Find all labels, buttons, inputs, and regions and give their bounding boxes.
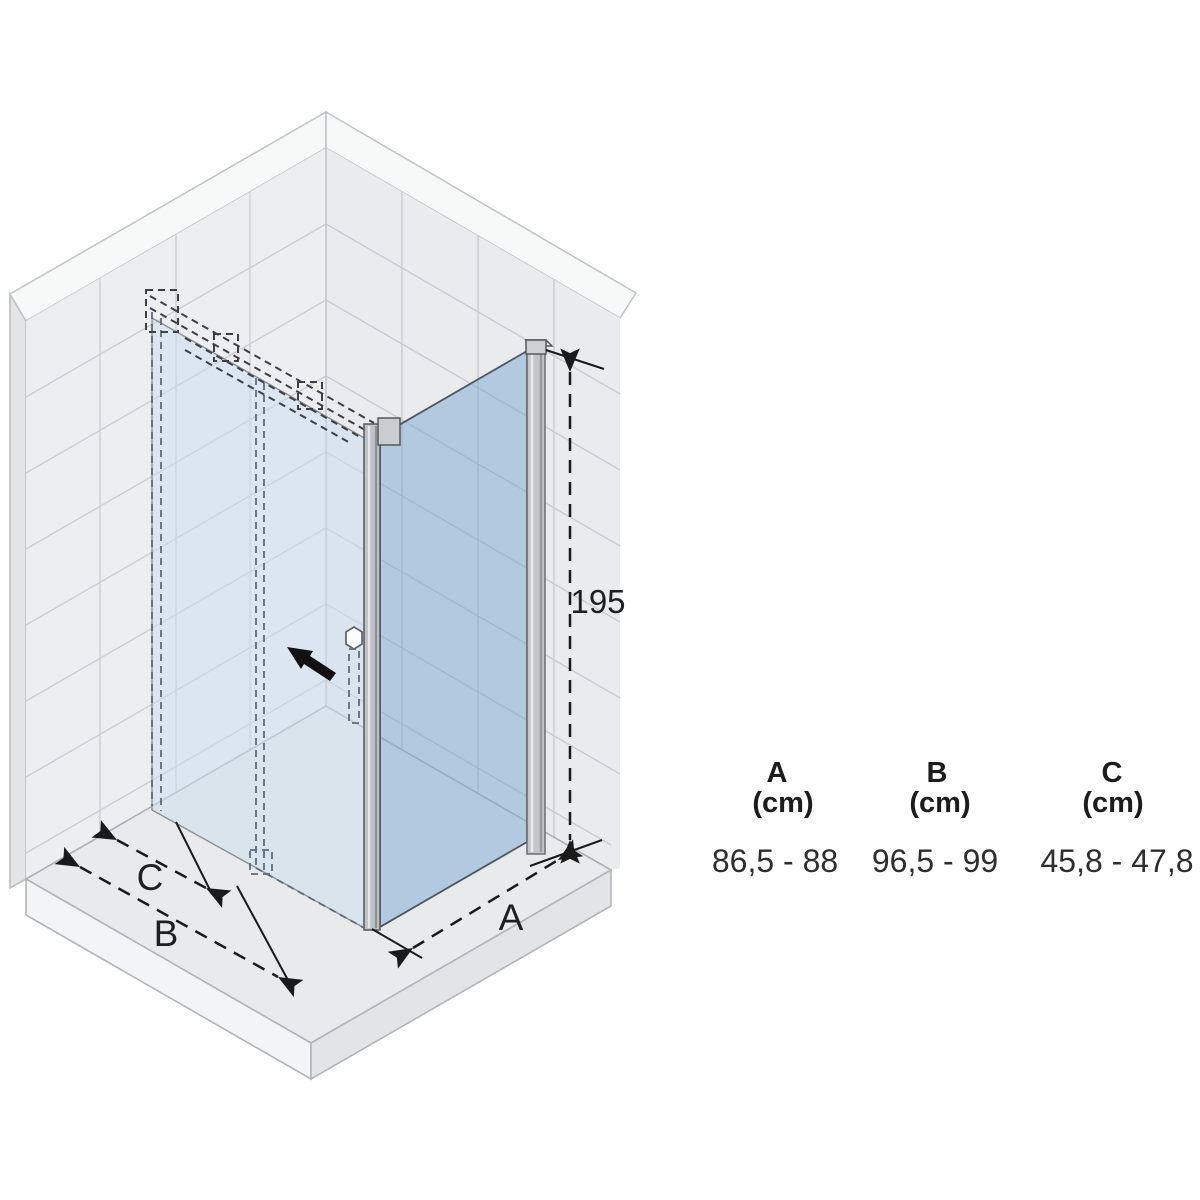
table-column-b: B (cm) 96,5 - 99	[872, 757, 998, 879]
dimension-table: A (cm) 86,5 - 88 B (cm) 96,5 - 99 C (cm)…	[712, 757, 1194, 879]
side-panel-assembly	[364, 340, 552, 930]
dimension-label-a: A	[499, 897, 524, 938]
rail-end-bracket	[378, 418, 400, 445]
dimension-label-b: B	[154, 913, 179, 954]
dimension-label-c: C	[137, 857, 164, 898]
left-wall-outer-edge	[10, 294, 26, 888]
table-column-c: C (cm) 45,8 - 47,8	[1041, 757, 1194, 879]
wall-profile-cap	[526, 340, 546, 354]
table-header-c: C	[1102, 757, 1123, 789]
side-panel-glass	[380, 351, 527, 927]
table-column-a: A (cm) 86,5 - 88	[712, 757, 838, 879]
table-header-a-unit: (cm)	[752, 787, 813, 819]
dimension-label-height: 195	[570, 583, 625, 620]
table-header-c-unit: (cm)	[1082, 787, 1143, 819]
table-header-a: A	[767, 757, 788, 789]
table-value-b: 96,5 - 99	[872, 843, 998, 879]
table-value-a: 86,5 - 88	[712, 843, 838, 879]
table-value-c: 45,8 - 47,8	[1041, 843, 1194, 879]
table-header-b: B	[927, 757, 948, 789]
shower-enclosure-dimension-diagram: C B A 195 A (cm) 86,5 - 88 B (cm) 96,5 -…	[0, 0, 1200, 1200]
handle-cap	[346, 627, 362, 649]
diagram-canvas: C B A 195 A (cm) 86,5 - 88 B (cm) 96,5 -…	[0, 0, 1200, 1200]
table-header-b-unit: (cm)	[909, 787, 970, 819]
